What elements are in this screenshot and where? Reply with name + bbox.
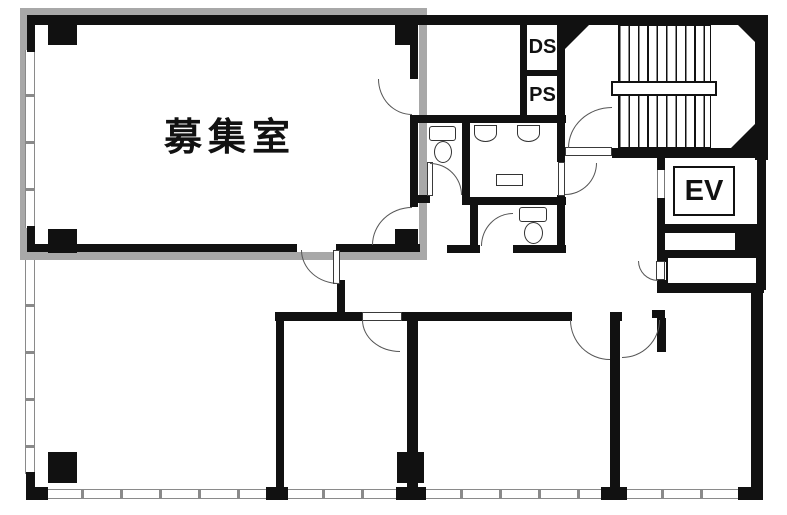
duct-space-label-box: DS — [527, 24, 558, 70]
door-swing-icon — [570, 320, 610, 360]
wall — [751, 288, 763, 499]
wall — [738, 487, 763, 500]
sink-icon — [496, 174, 523, 186]
vacant-room-highlight-border-right — [419, 8, 427, 260]
toilet-tank-icon — [519, 207, 547, 222]
shaft-opening — [665, 233, 735, 250]
door-leaf — [558, 162, 565, 196]
wall — [657, 285, 764, 293]
column — [397, 452, 424, 483]
column — [395, 25, 418, 45]
column — [48, 25, 77, 45]
window-strip — [45, 489, 267, 499]
door-swing-icon — [378, 79, 412, 115]
wall — [447, 245, 480, 253]
stairwell-corner-chamfer — [565, 25, 589, 49]
column — [48, 452, 77, 483]
wall — [610, 318, 620, 497]
stairwell-corner-chamfer — [738, 25, 762, 49]
toilet-bowl-icon — [434, 141, 452, 163]
wall — [462, 197, 566, 205]
door-swing-icon — [568, 107, 612, 148]
service-room — [666, 256, 758, 285]
column — [48, 229, 77, 253]
door-swing-icon — [622, 320, 660, 358]
elevator-door-icon — [657, 170, 665, 198]
wall — [557, 24, 565, 162]
door-swing-icon — [565, 163, 597, 195]
window-strip — [25, 50, 35, 228]
door-swing-icon — [362, 320, 400, 352]
window-strip — [286, 489, 398, 499]
urinal-icon — [517, 125, 540, 142]
wall — [337, 280, 345, 317]
wall — [410, 115, 418, 207]
elevator-label: EV — [685, 175, 724, 208]
wall — [415, 195, 430, 203]
door-swing-icon — [638, 261, 658, 281]
elevator-label-box: EV — [673, 166, 735, 216]
wall — [276, 313, 284, 497]
toilet-tank-icon — [429, 126, 456, 141]
wall — [27, 15, 768, 25]
vacant-room-label-box: 募集室 — [80, 108, 380, 158]
wall — [520, 24, 527, 123]
vacant-room-highlight-border-bottom — [20, 252, 427, 260]
wall — [402, 312, 572, 321]
vacant-room-label: 募集室 — [164, 106, 296, 161]
window-strip — [625, 489, 740, 499]
wall — [26, 472, 35, 489]
toilet-bowl-icon — [524, 222, 543, 244]
stairwell-corner-chamfer — [731, 124, 755, 148]
door-swing-icon — [430, 163, 462, 195]
wall — [462, 122, 470, 203]
urinal-icon — [474, 125, 497, 142]
floor-plan: EV 募集室 DS PS — [0, 0, 787, 515]
window-strip — [25, 260, 35, 474]
door-swing-icon — [372, 207, 412, 245]
wall — [657, 158, 665, 170]
wall — [27, 24, 35, 52]
wall — [275, 312, 362, 321]
wall — [410, 115, 566, 123]
wall — [652, 310, 665, 318]
duct-space-label: DS — [529, 36, 557, 59]
wall — [657, 198, 665, 226]
door-swing-icon — [481, 213, 513, 246]
pipe-space-label-box: PS — [527, 76, 558, 115]
stair-landing — [611, 81, 717, 96]
door-leaf — [565, 147, 612, 156]
pipe-space-label: PS — [529, 84, 556, 107]
door-swing-icon — [301, 250, 339, 284]
wall — [612, 148, 757, 158]
wall — [513, 245, 566, 253]
window-strip — [424, 489, 603, 499]
